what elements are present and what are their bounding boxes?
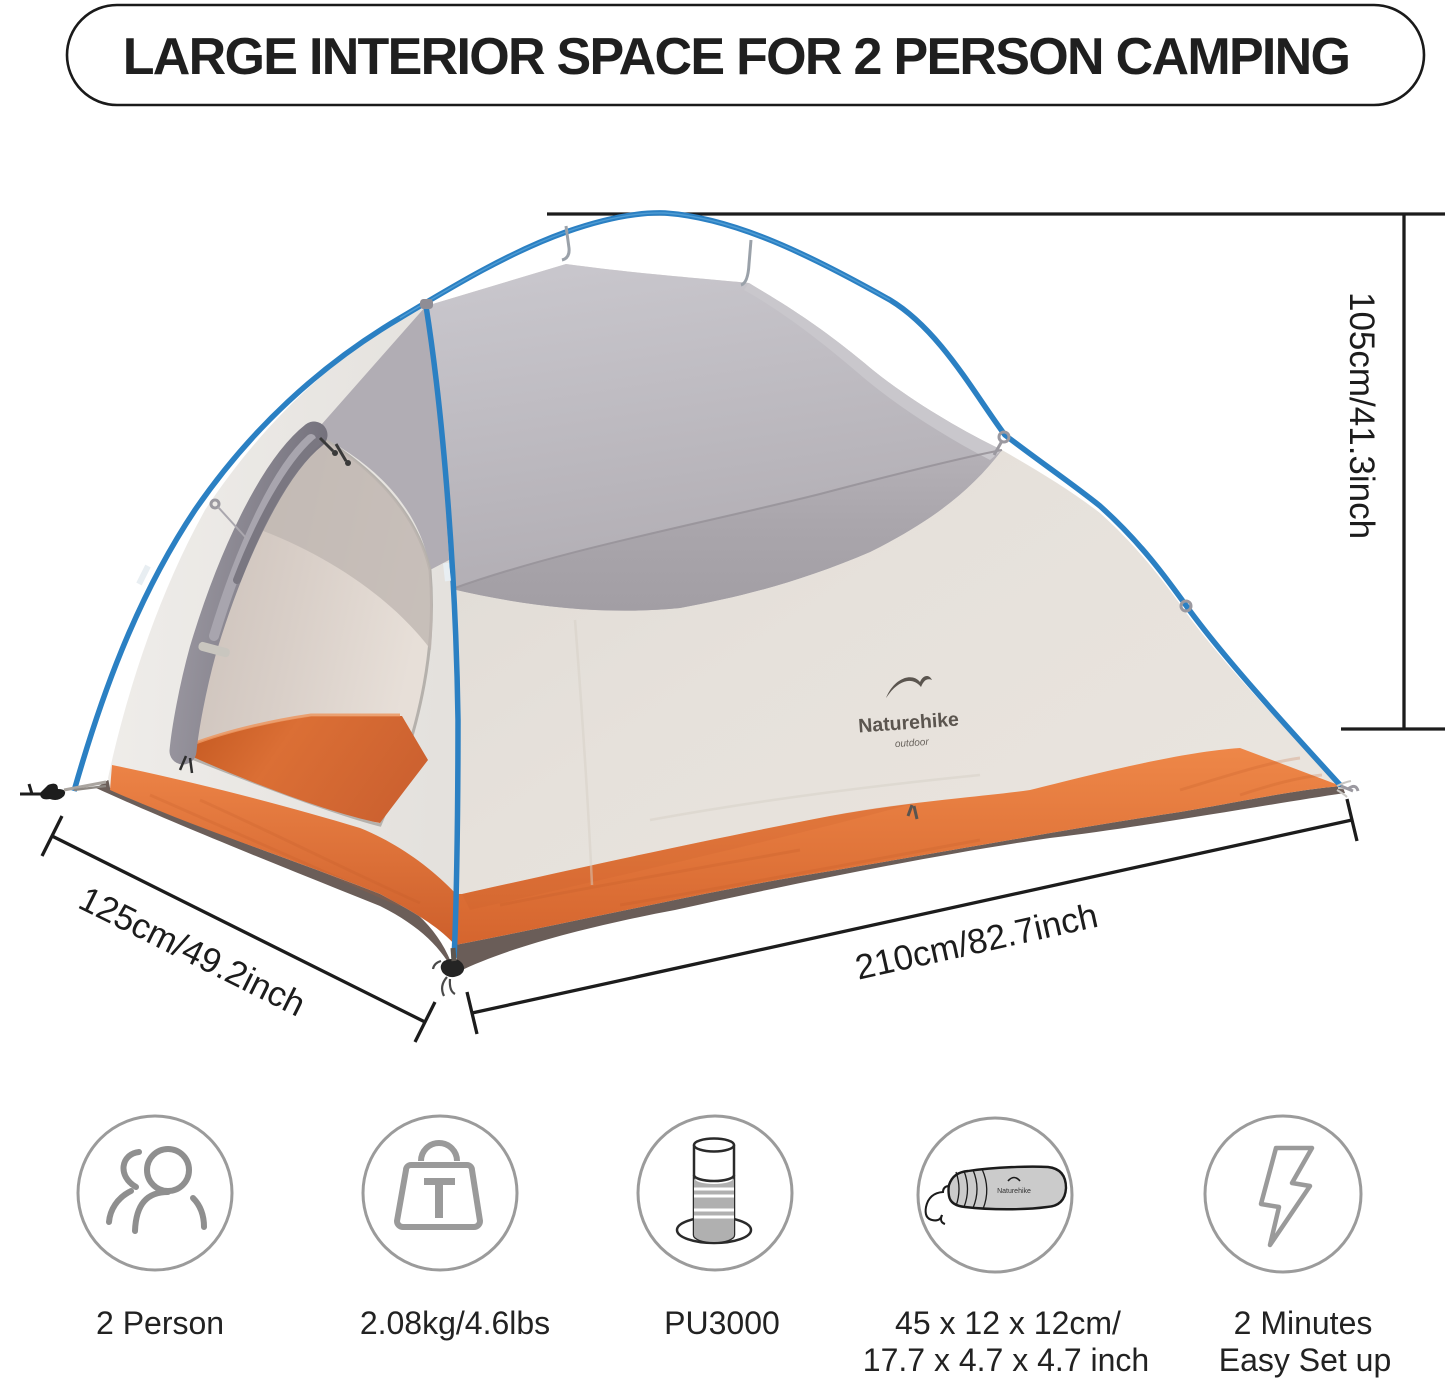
svg-text:45 x 12 x 12cm/: 45 x 12 x 12cm/ [895, 1305, 1121, 1341]
svg-text:17.7 x 4.7 x 4.7 inch: 17.7 x 4.7 x 4.7 inch [863, 1342, 1149, 1378]
svg-text:210cm/82.7inch: 210cm/82.7inch [852, 896, 1102, 988]
svg-text:2.08kg/4.6lbs: 2.08kg/4.6lbs [360, 1305, 550, 1341]
svg-text:2 Minutes: 2 Minutes [1234, 1305, 1373, 1341]
svg-text:125cm/49.2inch: 125cm/49.2inch [73, 879, 312, 1024]
svg-text:2 Person: 2 Person [96, 1305, 224, 1341]
svg-text:105cm/41.3inch: 105cm/41.3inch [1342, 292, 1381, 539]
svg-text:Naturehike: Naturehike [997, 1188, 1031, 1195]
svg-text:PU3000: PU3000 [664, 1305, 780, 1341]
svg-text:Easy Set up: Easy Set up [1219, 1342, 1392, 1378]
svg-text:LARGE INTERIOR SPACE FOR 2 PER: LARGE INTERIOR SPACE FOR 2 PERSON CAMPIN… [123, 28, 1350, 86]
